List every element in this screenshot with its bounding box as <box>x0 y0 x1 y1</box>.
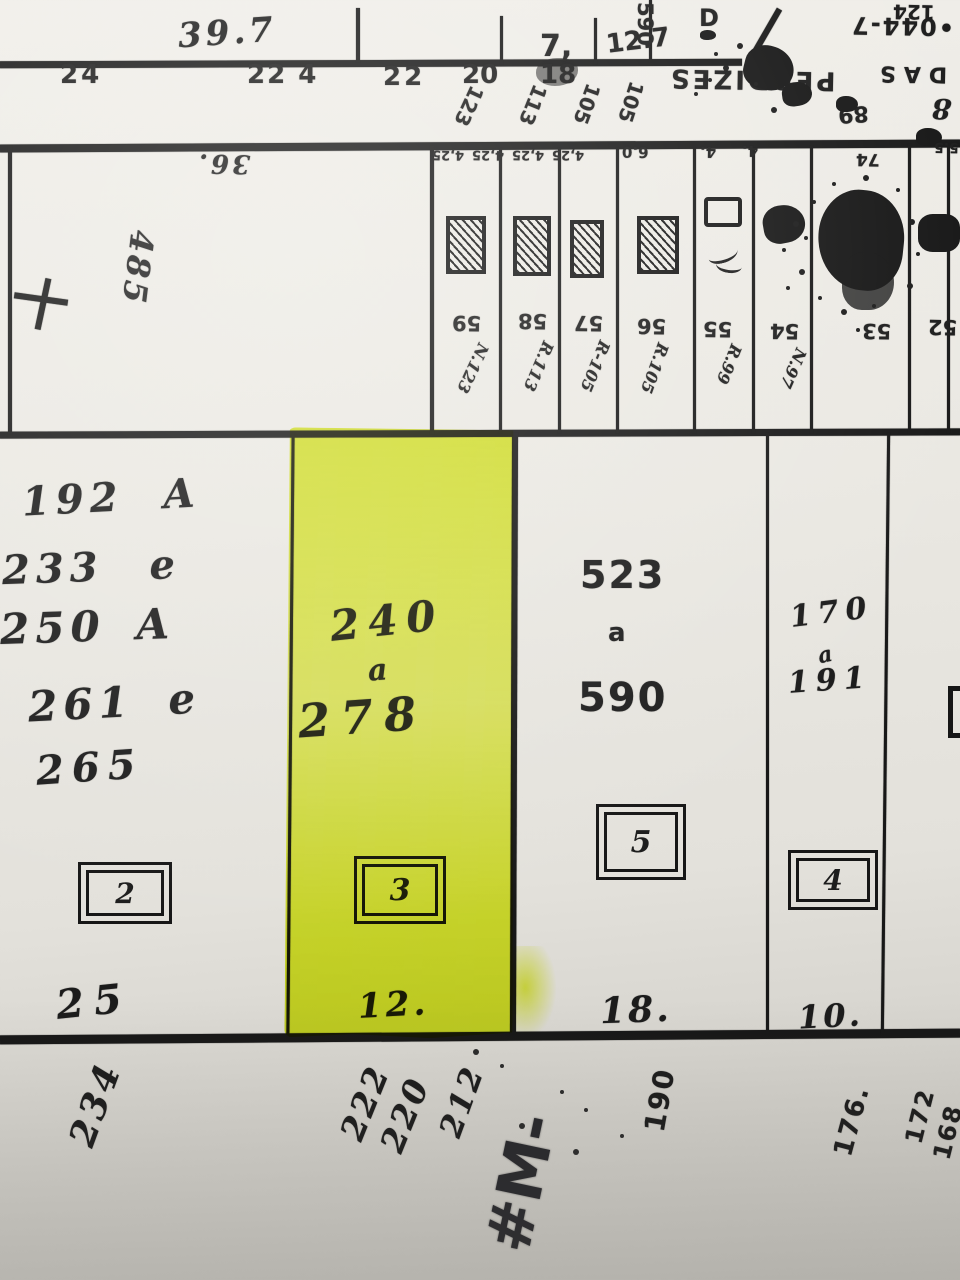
lot-number: 55 <box>703 318 733 340</box>
ink-blot <box>842 252 894 310</box>
lot-divider <box>810 146 813 433</box>
ink-spray <box>812 200 816 204</box>
block-number: 3 <box>390 873 411 908</box>
lot-number: 59 <box>452 312 482 334</box>
lot-ref: R.99 <box>713 342 743 386</box>
block-number: 4 <box>823 864 842 897</box>
parcel-frontage: 25 <box>54 978 133 1026</box>
sheet-code: •044-7 <box>850 13 955 39</box>
lot-number: 58 <box>518 310 548 332</box>
parcel-house-numbers: 261 e <box>27 678 202 729</box>
street-house-number: 24 <box>60 62 102 88</box>
block-marker-5: 5 <box>596 804 686 880</box>
marker-annotation: #M- <box>477 1108 567 1257</box>
lot-divider <box>693 148 696 433</box>
boundary-line-top <box>0 59 742 69</box>
block-number: 2 <box>115 877 134 910</box>
parcel-range-from: 240 <box>328 594 446 648</box>
parcel-range-conj: a <box>608 620 626 646</box>
plat-map-photo: 39.7 7, 12.7 590 D 124 •044-7 DAS PERDIZ… <box>0 0 960 1280</box>
lot-width-label: 6.0 <box>622 144 649 159</box>
lot-width-label: 4,25 <box>472 148 504 162</box>
building-footprint-hatched <box>513 216 551 276</box>
parcel-divider <box>286 433 294 1034</box>
street-house-number: 22 4 <box>247 62 318 88</box>
parcel-range-from: 170 <box>788 593 875 633</box>
parcel-range-conj: a <box>367 655 388 686</box>
parcel-house-numbers: 265 <box>35 744 145 791</box>
lot-divider <box>947 144 950 433</box>
lot-width-label: 5.5 <box>934 140 959 154</box>
side-ref-number: 113 <box>516 82 550 128</box>
parcel-divider-heavy <box>510 433 518 1034</box>
lot-divider <box>500 16 503 64</box>
building-footprint-solid <box>918 214 960 252</box>
lot-divider <box>616 148 619 433</box>
lot-ref: N.97 <box>777 346 808 390</box>
parcel-house-numbers: 233 e <box>1 545 181 591</box>
building-footprint-hatched <box>570 220 604 278</box>
lot-divider <box>430 146 434 434</box>
lot-ref: R.113 <box>521 339 556 393</box>
parcel-house-numbers: 192 A <box>21 473 201 522</box>
ink-speckles <box>714 52 718 56</box>
parcel-house-numbers: 250 A <box>0 603 176 651</box>
block-left-edge <box>8 146 12 434</box>
block-marker-inner: 5 <box>604 812 678 872</box>
lot-width-label: 4,25 <box>552 148 584 162</box>
block-side-code: 485 <box>117 228 158 307</box>
parcel-divider <box>881 433 890 1034</box>
ink-smudge <box>700 30 716 40</box>
block-marker-2: 2 <box>78 862 172 924</box>
street-name-das: DAS <box>872 61 948 84</box>
parcel-frontage: 18. <box>599 991 672 1029</box>
ink-smudge <box>836 96 858 112</box>
side-ref-number: 123 <box>451 83 487 129</box>
depth-note: 39.7 <box>177 13 278 54</box>
lot-number: 52 <box>928 316 958 338</box>
parcel-range-to: 191 <box>787 663 873 699</box>
ink-speckles <box>560 1090 564 1094</box>
parcel-frontage: 10. <box>797 998 863 1033</box>
lot-ref: N.123 <box>454 341 491 395</box>
block-marker-4: 4 <box>788 850 878 910</box>
lot-divider <box>908 144 911 433</box>
boundary-line-strip-south <box>0 428 960 438</box>
lot-width-label: 74 <box>856 150 880 167</box>
block-marker-3: 3 <box>354 856 446 924</box>
lot-divider <box>594 18 597 64</box>
side-ref-number: 105 <box>615 79 647 125</box>
lot-number: 53 <box>862 320 892 342</box>
building-footprint-solid <box>760 202 808 247</box>
d-mark: D <box>699 6 719 30</box>
lot-ref: R-105 <box>577 338 612 393</box>
lot-width-label: 4,25 <box>512 148 544 162</box>
lot-divider <box>558 148 561 433</box>
building-footprint-outline <box>704 197 742 227</box>
block-marker-inner: 4 <box>796 858 870 902</box>
block-width-note: 36. <box>196 150 251 177</box>
lot-divider <box>356 8 360 62</box>
yellow-highlight-streak <box>512 946 556 1038</box>
lot-width-label: 4. <box>700 144 716 159</box>
lot-divider <box>499 148 502 433</box>
lot-number: 57 <box>574 312 604 334</box>
parcel-divider <box>766 433 769 1034</box>
lot-width-label: 4. <box>742 143 758 158</box>
survey-tick-mark <box>35 278 52 330</box>
parcel-frontage: 12. <box>357 986 430 1024</box>
house-number-rotated: 590 <box>634 2 655 46</box>
parcel-range-to: 278 <box>297 690 429 745</box>
bottom-house-number: 190 <box>641 1066 680 1134</box>
bottom-house-number: 234 <box>64 1057 128 1151</box>
block-marker-inner: 3 <box>362 864 438 916</box>
lot-number: 54 <box>770 320 800 342</box>
bottom-house-number: 212 <box>436 1062 490 1142</box>
hand-squiggle <box>715 256 743 274</box>
parcel-range-to: 590 <box>578 678 668 718</box>
lot-ref: R.105 <box>638 341 671 396</box>
street-house-number: 22 <box>383 64 425 90</box>
partial-building-box <box>948 686 960 738</box>
lot-number: 56 <box>637 315 667 337</box>
lot-width-label: 4,25 <box>432 148 464 162</box>
lot-divider <box>752 148 755 433</box>
block-number: 5 <box>631 825 652 860</box>
parcel-range-from: 523 <box>580 556 665 594</box>
block-marker-inner: 2 <box>86 870 164 916</box>
building-footprint-hatched <box>446 216 486 274</box>
bottom-house-number: 176. <box>830 1083 874 1159</box>
hand-mark: 8 <box>932 94 952 123</box>
building-footprint-hatched <box>637 216 679 274</box>
